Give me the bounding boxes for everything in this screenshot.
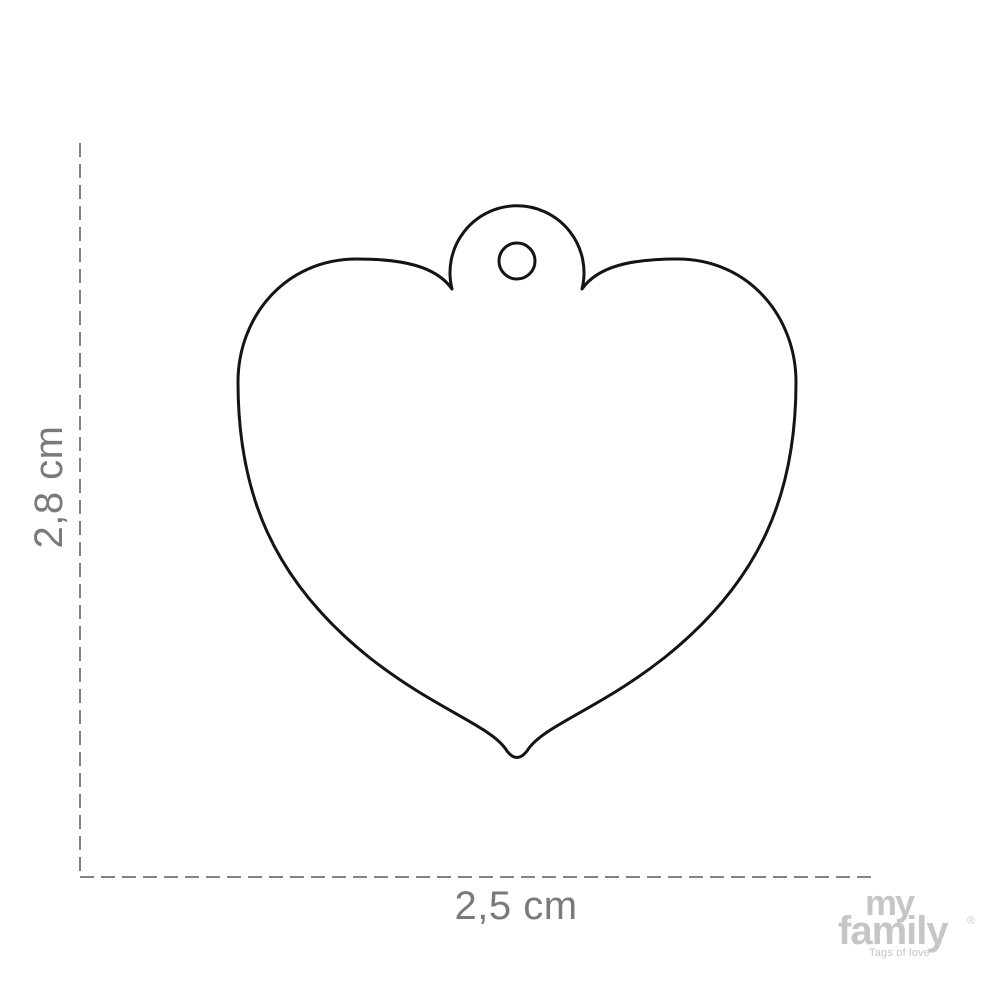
heart-tag-outline: [238, 206, 796, 758]
tag-hanging-hole: [499, 243, 535, 279]
width-dimension-label: 2,5 cm: [436, 884, 596, 928]
logo-word-family: family: [838, 911, 948, 951]
brand-logo: my family ® Tags of love: [835, 880, 995, 970]
height-dimension-label: 2,8 cm: [27, 407, 71, 567]
registered-trademark-icon: ®: [967, 916, 975, 927]
tag-drawing: [0, 0, 1000, 1000]
product-dimension-diagram: 2,8 cm 2,5 cm my family ® Tags of love: [0, 0, 1000, 1000]
logo-tagline: Tags of love: [869, 948, 930, 959]
